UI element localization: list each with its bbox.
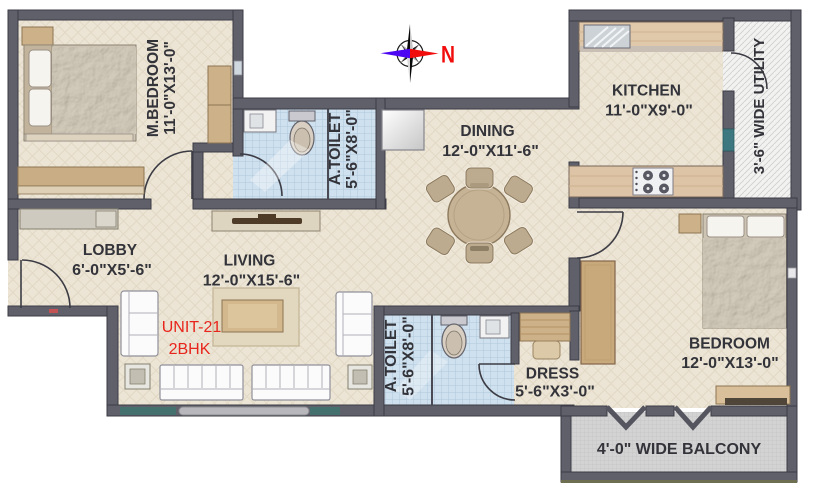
svg-text:2BHK: 2BHK [169, 341, 211, 358]
svg-text:3'-6" WIDE UTILITY: 3'-6" WIDE UTILITY [751, 38, 768, 175]
svg-text:12'-0"X13'-0": 12'-0"X13'-0" [681, 355, 779, 372]
svg-text:5'-6"X3'-0": 5'-6"X3'-0" [515, 384, 595, 401]
svg-text:DRESS: DRESS [526, 366, 579, 383]
svg-text:11'-0"X13'-0": 11'-0"X13'-0" [162, 41, 179, 135]
svg-text:12'-0"X15'-6": 12'-0"X15'-6" [203, 273, 301, 290]
svg-text:A.TOILET: A.TOILET [383, 319, 400, 392]
svg-text:N: N [441, 42, 455, 69]
svg-text:LOBBY: LOBBY [83, 242, 138, 259]
svg-text:A.TOILET: A.TOILET [327, 112, 344, 185]
svg-text:UNIT-21: UNIT-21 [162, 319, 222, 336]
svg-text:11'-0"X9'-0": 11'-0"X9'-0" [605, 103, 693, 120]
svg-text:DINING: DINING [460, 123, 514, 140]
svg-text:BEDROOM: BEDROOM [689, 336, 770, 353]
svg-text:12'-0"X11'-6": 12'-0"X11'-6" [442, 143, 539, 160]
svg-text:KITCHEN: KITCHEN [612, 83, 681, 100]
svg-text:M.BEDROOM: M.BEDROOM [145, 39, 162, 137]
svg-text:6'-0"X5'-6": 6'-0"X5'-6" [72, 262, 152, 279]
svg-text:LIVING: LIVING [224, 253, 276, 270]
svg-text:5'-6"X8'-0": 5'-6"X8'-0" [344, 109, 361, 189]
svg-text:5'-6"X8'-0": 5'-6"X8'-0" [401, 316, 418, 396]
svg-text:4'-0" WIDE BALCONY: 4'-0" WIDE BALCONY [597, 441, 762, 458]
